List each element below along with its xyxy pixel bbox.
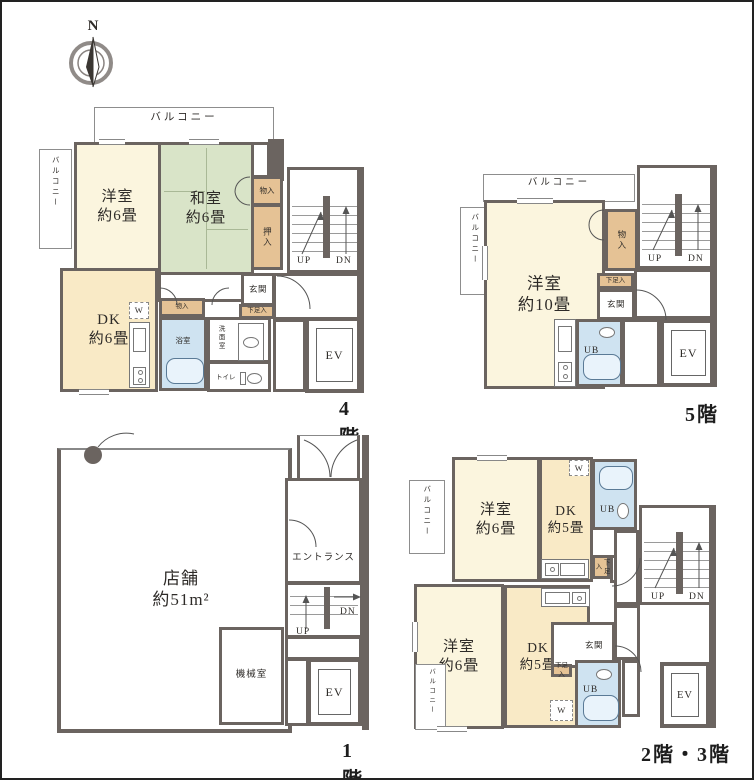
closet-storage-small-4f: 物入 — [159, 298, 205, 317]
tatami-line — [207, 229, 248, 230]
plan-1f: 店舗 約51m² エントランス UP DN 機械室 — [52, 430, 372, 765]
balcony-left-4f: バルコニー — [39, 149, 72, 249]
pipe-shaft-1f — [285, 658, 309, 726]
room-label: 玄関 — [249, 284, 267, 295]
sink-icon — [545, 592, 570, 604]
washer-space-lower: W — [550, 700, 573, 721]
closet-label: 物入 — [260, 186, 275, 195]
balcony-label: バルコニー — [470, 213, 479, 294]
window — [482, 246, 488, 280]
shoe-label: 下足入 — [593, 558, 609, 576]
closet-storage-4f: 物入 — [251, 176, 283, 206]
room-label: 玄関 — [585, 640, 603, 651]
plan-4f: バルコニー バルコニー 洋室 約6畳 和室 約6畳 物入 押入 DK 約6畳 W — [39, 105, 369, 420]
room-ub-lower-2f3f: UB — [575, 660, 621, 728]
vestibule-double-door-1f — [297, 435, 360, 480]
bathtub-icon — [599, 466, 633, 490]
burner-icon — [563, 374, 568, 379]
shoe-cabinet-5f: 下足入 — [597, 273, 634, 289]
room-label: 店舗 約51m² — [116, 568, 246, 611]
room-label: 洋室 約6畳 — [476, 501, 517, 539]
elevator-label: EV — [318, 669, 351, 715]
kitchen-counter-upper — [541, 559, 589, 579]
pipe-shaft-4f — [273, 319, 306, 392]
room-label: 機械室 — [236, 670, 268, 682]
room-label: トイレ — [216, 374, 236, 382]
balcony-lower-2f3f: バルコニー — [415, 664, 446, 730]
sink-icon — [243, 337, 259, 348]
stair-dn-label: DN — [688, 254, 704, 264]
bathtub-icon — [166, 358, 204, 384]
pipe-shaft-5f — [622, 319, 660, 387]
closet-label: 物入 — [616, 230, 627, 251]
floor-label-1f: 1階 — [342, 740, 372, 780]
room-label: 和室 約6畳 — [186, 190, 227, 228]
room-ub-upper-2f3f: UB — [592, 459, 637, 530]
vanity-icon — [238, 323, 264, 361]
room-label: 洋室 約6畳 — [97, 188, 138, 226]
room-toilet-4f: トイレ — [207, 361, 271, 392]
stair-dn-label: DN — [336, 256, 352, 266]
common-hall-4f — [273, 273, 362, 320]
washer-label: W — [557, 705, 566, 716]
wall-segment — [362, 435, 369, 730]
window — [79, 389, 109, 395]
room-washroom-4f: 洗面室 — [207, 317, 271, 363]
pipe-shaft-2f3f — [622, 660, 640, 717]
shoe-label: 下足入 — [606, 277, 626, 285]
kitchen-counter-4f — [129, 322, 150, 388]
closet-label: 物入 — [176, 303, 189, 311]
room-japanese-6-4f: 和室 約6畳 — [158, 142, 254, 275]
room-label: 洗面室 — [216, 325, 224, 351]
room-bath-4f: 浴室 — [159, 317, 207, 391]
floorplan-sheet: N バルコニー バルコニー 洋室 約6畳 和室 約6畳 物入 — [0, 0, 754, 780]
room-label: 浴室 — [162, 336, 204, 345]
window — [477, 455, 507, 461]
room-western-6-4f: 洋室 約6畳 — [74, 142, 161, 272]
common-hall-mid-2f3f — [614, 605, 640, 660]
wall-segment — [709, 505, 716, 728]
closet-label: 押入 — [262, 227, 273, 248]
room-label: DK 約6畳 — [89, 311, 130, 349]
washer-label: W — [575, 463, 584, 474]
stove-icon — [572, 592, 586, 604]
alcove-4f — [251, 142, 270, 178]
stairwell-1f: UP DN — [285, 582, 363, 638]
window — [412, 622, 418, 652]
window — [99, 139, 125, 145]
burner-icon — [138, 370, 143, 375]
floor-label-2f3f: 2階・3階 — [641, 738, 731, 767]
stove-icon — [133, 367, 146, 385]
room-label: UB — [600, 505, 615, 517]
washer-space-upper: W — [569, 460, 589, 476]
sink-icon — [599, 327, 615, 338]
room-label: DK 約5畳 — [548, 503, 585, 537]
balcony-label: バルコニー — [422, 485, 431, 553]
toilet-icon — [247, 373, 262, 384]
elevator-label: EV — [671, 673, 699, 717]
floor-label-5f: 5階 — [685, 398, 719, 427]
room-label: 玄関 — [607, 299, 625, 310]
washer-space-4f: W — [129, 302, 149, 319]
stove-icon — [558, 362, 572, 382]
entrance-pivot-column — [84, 446, 102, 464]
stair-up-label: UP — [651, 592, 665, 602]
burner-icon — [563, 365, 568, 370]
burner-icon — [577, 596, 582, 601]
common-hall-upper-2f3f — [614, 530, 639, 605]
shoe-cabinet-4f: 下足入 — [239, 304, 275, 319]
room-genkan-4f: 玄関 — [241, 273, 275, 306]
sink-icon — [560, 563, 585, 576]
room-label: 洋室 約10畳 — [518, 274, 572, 315]
stairwell-5f: UP DN — [637, 165, 715, 269]
room-label: エントランス — [288, 553, 359, 565]
bathtub-icon — [583, 354, 621, 380]
stair-dn-label: DN — [689, 592, 705, 602]
stair-rail — [675, 194, 682, 256]
room-western-6a-2f3f: 洋室 約6畳 — [452, 457, 540, 582]
balcony-upper-2f3f: バルコニー — [409, 480, 445, 554]
bathtub-icon — [583, 695, 619, 721]
compass: N — [64, 18, 122, 96]
window — [517, 198, 553, 204]
shoe-label: 下足入 — [247, 307, 267, 315]
stairwell-2f3f: UP DN — [639, 505, 716, 605]
closet-oshiire-4f: 押入 — [251, 204, 283, 270]
stair-dn-label: DN — [340, 607, 356, 617]
sink-icon — [596, 669, 612, 680]
compass-rose-icon — [68, 35, 118, 91]
kitchen-counter-lower — [541, 588, 590, 607]
compass-north-label: N — [64, 18, 122, 35]
sink-icon — [133, 328, 146, 352]
wall-segment — [710, 165, 717, 387]
burner-icon — [550, 567, 555, 572]
room-machine-1f: 機械室 — [219, 627, 284, 725]
room-genkan-5f: 玄関 — [597, 289, 635, 320]
stair-rail — [676, 532, 683, 594]
washer-label: W — [135, 305, 144, 316]
shoe-label: 下足入 — [554, 662, 569, 678]
common-hall-5f — [634, 269, 715, 319]
plan-5f: バルコニー バルコニー 洋室 約10畳 物入 下足入 玄関 UB — [457, 162, 749, 420]
elevator-2f3f: EV — [660, 662, 710, 728]
balcony-label: バルコニー — [426, 668, 434, 729]
kitchen-counter-5f — [554, 319, 576, 387]
stove-icon — [545, 563, 559, 576]
shoe-cabinet-lower: 下足入 — [551, 664, 572, 677]
common-hall-1f — [285, 636, 362, 660]
room-ub-5f: UB — [576, 319, 623, 387]
room-entrance-1f: エントランス — [285, 478, 362, 584]
stair-up-label: UP — [297, 256, 311, 266]
window — [437, 726, 467, 732]
stair-up-label: UP — [648, 254, 662, 264]
wall-segment — [357, 167, 364, 393]
toilet-tank-icon — [240, 372, 246, 385]
elevator-5f: EV — [660, 319, 717, 387]
sink-icon — [558, 326, 572, 352]
balcony-label: バルコニー — [51, 156, 60, 248]
elevator-label: EV — [671, 330, 706, 376]
balcony-top-5f: バルコニー — [483, 174, 635, 202]
elevator-1f: EV — [307, 658, 362, 726]
stairwell-4f: UP DN — [287, 167, 363, 273]
shoe-cabinet-upper: 下足入 — [592, 555, 610, 579]
window — [189, 139, 219, 145]
wall-segment — [268, 139, 284, 181]
double-door-arc-icon — [300, 436, 363, 481]
closet-storage-5f: 物入 — [605, 209, 638, 271]
stair-rail — [324, 587, 330, 629]
burner-icon — [138, 378, 143, 383]
stair-rail — [323, 196, 330, 258]
toilet-icon — [617, 503, 629, 519]
plan-2f3f: バルコニー 洋室 約6畳 DK 約5畳 W UB 下足入 玄関 — [407, 442, 749, 767]
elevator-4f: EV — [305, 317, 364, 393]
elevator-label: EV — [316, 328, 353, 382]
